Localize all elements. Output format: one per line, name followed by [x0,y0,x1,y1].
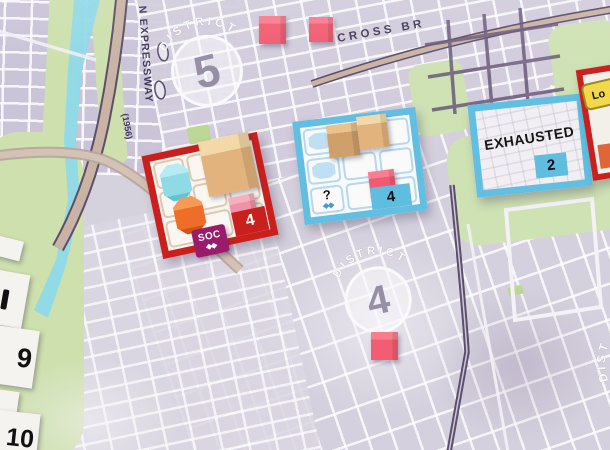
empty-tile-slot [506,199,601,320]
handshake-icon [320,200,337,211]
svg-text:DIST: DIST [577,334,610,388]
wood-cube-large-piece[interactable] [198,132,260,197]
pink-cube-piece[interactable] [371,332,398,360]
edge-tile-label: Lo [580,71,610,111]
pink-cube-piece[interactable] [259,16,286,44]
track-card-10[interactable]: 10 [0,410,41,450]
expressway-year-label: (1956) [120,113,134,140]
exhausted-tile-value: 2 [534,152,568,178]
orange-piece-partial[interactable] [597,143,610,169]
cross-street-label: CROSS BR [336,18,425,45]
district-edge-name: DIST [577,334,610,388]
exhausted-title: EXHAUSTED [478,122,581,154]
exhausted-tile[interactable]: EXHAUSTED 2 [467,93,592,198]
district-boundary-line [0,30,96,60]
district-boundary-line [468,224,508,450]
wood-cube-piece[interactable] [326,122,361,159]
partial-digit-mark [0,289,9,310]
blue-district-tile[interactable]: ? 4 [292,107,428,225]
pink-cube-piece[interactable] [309,17,333,42]
question-mark-label: ? [322,189,331,202]
blue-tile-value: 4 [370,183,412,210]
board-game-photo: N EXPRESSWAY (1956) CROSS BR DISTRICT 5 … [0,0,610,450]
handshake-icon [203,240,221,252]
track-card-number: 10 [5,423,36,450]
track-card-number: 9 [15,342,34,375]
expressway-road [58,0,122,248]
wood-cube-piece[interactable] [356,113,390,149]
question-slot: ? [309,185,345,216]
tile-slot-octagon [306,155,342,186]
